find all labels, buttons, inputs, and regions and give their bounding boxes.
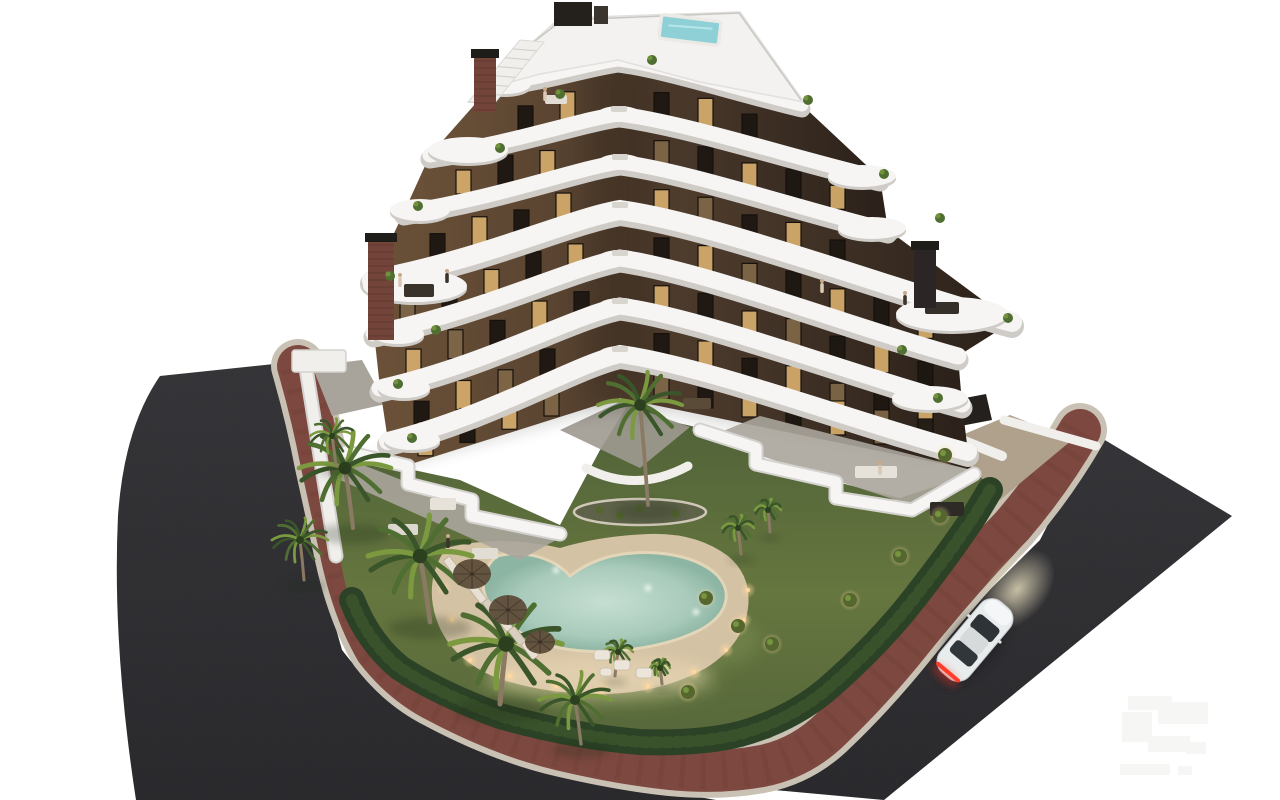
person bbox=[820, 283, 824, 293]
lit-shrub-highlight bbox=[845, 595, 851, 601]
palm-shadow bbox=[728, 556, 754, 563]
terrace-furniture bbox=[855, 466, 897, 478]
roof-core-vent bbox=[594, 6, 608, 24]
deck-sofa bbox=[614, 660, 630, 670]
balcony-plant-highlight bbox=[386, 272, 391, 277]
balcony-plant-highlight bbox=[414, 202, 419, 207]
palm-shadow bbox=[654, 688, 670, 692]
pool-light bbox=[553, 567, 559, 573]
palm-crown-center bbox=[735, 525, 741, 531]
palm-crown-center bbox=[329, 433, 335, 439]
terrace-furniture bbox=[683, 398, 711, 409]
palm-crown-center bbox=[634, 399, 646, 411]
terrace-furniture bbox=[472, 548, 498, 559]
deck-sofa bbox=[594, 650, 610, 660]
lit-shrub-highlight bbox=[701, 593, 707, 599]
parasol-pole bbox=[538, 640, 542, 643]
person bbox=[543, 91, 547, 101]
chimney-cap bbox=[471, 49, 499, 58]
bed-plant bbox=[596, 506, 604, 514]
person-head bbox=[878, 461, 882, 465]
person-head bbox=[445, 269, 449, 273]
palm-crown-center bbox=[615, 649, 621, 655]
corner-balcony-sofa bbox=[611, 106, 627, 112]
corner-balcony-sofa bbox=[612, 154, 628, 160]
pool-light bbox=[693, 609, 699, 615]
chimney-cap bbox=[911, 241, 939, 250]
terrace-deck bbox=[838, 217, 906, 239]
watermark-glyph bbox=[1178, 766, 1192, 775]
deck-lantern bbox=[468, 658, 472, 662]
watermark-glyph bbox=[1158, 702, 1208, 724]
window bbox=[874, 297, 889, 326]
corner-balcony-sofa bbox=[612, 202, 628, 208]
lit-shrub-highlight bbox=[940, 450, 946, 456]
chimney bbox=[474, 56, 496, 112]
chimney bbox=[914, 248, 936, 308]
lit-shrub-highlight bbox=[683, 687, 689, 693]
person bbox=[398, 277, 402, 287]
balcony-plant-highlight bbox=[394, 380, 399, 385]
palm-shadow bbox=[603, 679, 627, 686]
entrance-pergola bbox=[292, 350, 346, 372]
deck-sofa bbox=[636, 668, 652, 678]
terrace-deck bbox=[892, 386, 968, 410]
window bbox=[456, 381, 471, 410]
terrace-furniture bbox=[404, 284, 434, 297]
render-scene: Dusk aerial 3D render of a modern apartm… bbox=[0, 0, 1280, 800]
person-head bbox=[398, 273, 402, 277]
chimney-cap bbox=[365, 233, 397, 242]
terrace-deck bbox=[378, 378, 430, 398]
deck-lantern bbox=[646, 684, 650, 688]
palm-shadow bbox=[318, 467, 353, 477]
watermark-glyph bbox=[1122, 712, 1152, 742]
palm-crown-center bbox=[570, 695, 580, 705]
window bbox=[518, 106, 533, 130]
lit-shrub-highlight bbox=[895, 551, 901, 557]
person-head bbox=[903, 291, 907, 295]
window bbox=[830, 185, 845, 209]
person bbox=[878, 465, 882, 475]
watermark-glyph bbox=[1186, 742, 1206, 754]
person bbox=[903, 295, 907, 305]
balcony-plant-highlight bbox=[1004, 314, 1009, 319]
roof-core bbox=[554, 2, 592, 26]
palm-crown-center bbox=[765, 507, 771, 513]
balcony-plant-highlight bbox=[648, 56, 653, 61]
palm-shadow bbox=[760, 535, 781, 541]
window bbox=[786, 169, 801, 198]
palm-crown-center bbox=[498, 636, 514, 652]
roof-pool-group bbox=[659, 14, 721, 45]
parasol-pole bbox=[470, 572, 474, 575]
corner-balcony-sofa bbox=[612, 250, 628, 256]
palm-crown-center bbox=[657, 665, 663, 671]
corner-balcony-sofa bbox=[612, 298, 628, 304]
watermark-glyph bbox=[1120, 764, 1170, 775]
balcony-plant-highlight bbox=[804, 96, 809, 101]
balcony-plant-highlight bbox=[432, 326, 437, 331]
deck-sofa bbox=[600, 668, 612, 676]
parasol bbox=[489, 595, 527, 625]
watermark-glyph bbox=[1148, 736, 1190, 752]
chimney bbox=[368, 240, 394, 340]
lit-shrub-highlight bbox=[733, 621, 739, 627]
balcony-plant-highlight bbox=[408, 434, 413, 439]
person bbox=[445, 273, 449, 283]
corner-balcony-sofa bbox=[612, 346, 628, 352]
window bbox=[918, 361, 933, 385]
deck-lantern bbox=[508, 674, 512, 678]
palm-shadow bbox=[282, 580, 327, 592]
deck-lantern bbox=[724, 648, 728, 652]
balcony-plant-highlight bbox=[934, 394, 939, 399]
parasol bbox=[453, 559, 491, 589]
palm-crown-center bbox=[413, 549, 428, 564]
pool-light bbox=[645, 585, 651, 591]
lit-shrub-highlight bbox=[935, 511, 941, 517]
deck-lantern bbox=[746, 588, 750, 592]
parasol-pole bbox=[506, 608, 510, 611]
deck-lantern bbox=[692, 670, 696, 674]
balcony-plant-highlight bbox=[496, 144, 501, 149]
balcony-plant-highlight bbox=[898, 346, 903, 351]
person bbox=[446, 538, 450, 548]
palm-trunk bbox=[768, 510, 770, 532]
terrace-furniture bbox=[430, 498, 456, 510]
balcony-plant-highlight bbox=[936, 214, 941, 219]
window bbox=[456, 170, 471, 194]
person-head bbox=[446, 534, 450, 538]
lit-shrub-highlight bbox=[767, 639, 773, 645]
person-head bbox=[820, 279, 824, 283]
person-head bbox=[543, 87, 547, 91]
window bbox=[448, 330, 463, 359]
parasol bbox=[525, 630, 555, 653]
roof-plunge-pool bbox=[659, 14, 721, 45]
architectural-render bbox=[0, 0, 1280, 800]
palm-crown-center bbox=[296, 536, 304, 544]
layer-watermark bbox=[1120, 696, 1208, 775]
balcony-plant-highlight bbox=[556, 90, 561, 95]
balcony-plant-highlight bbox=[880, 170, 885, 175]
